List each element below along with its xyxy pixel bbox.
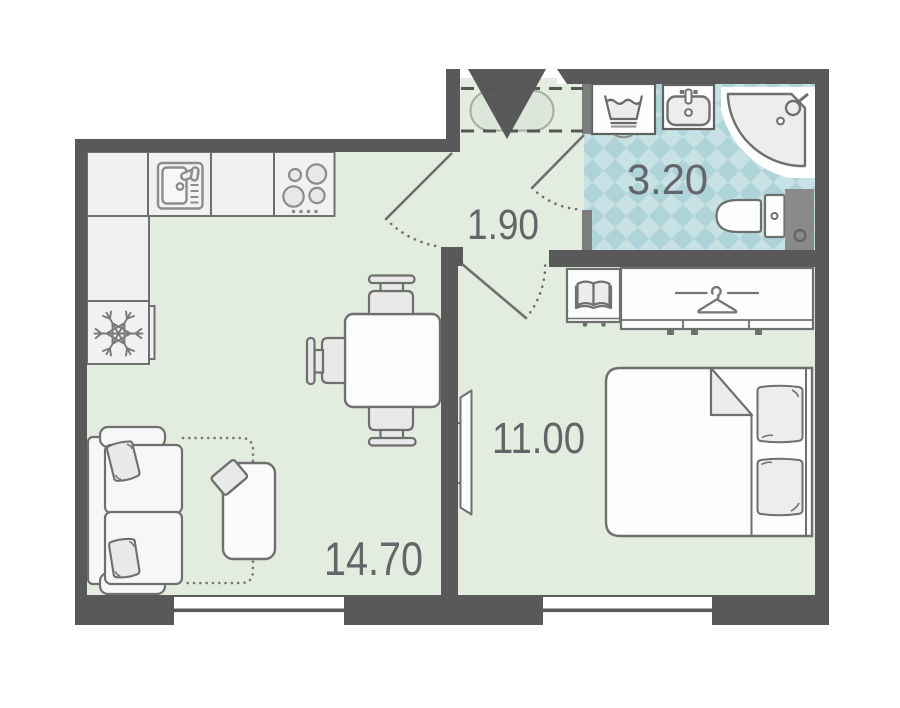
svg-text:11.00: 11.00 (492, 414, 585, 463)
svg-text:1.90: 1.90 (467, 201, 539, 249)
svg-text:3.20: 3.20 (627, 156, 708, 204)
svg-text:14.70: 14.70 (324, 532, 423, 585)
